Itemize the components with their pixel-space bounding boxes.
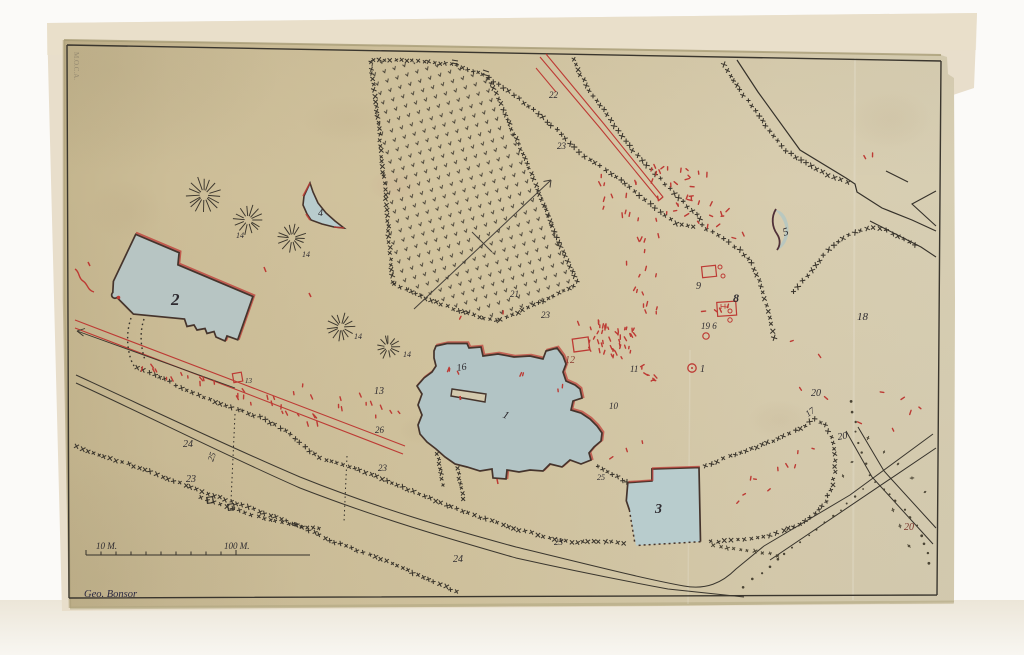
- svg-text:14: 14: [236, 231, 244, 240]
- svg-text:100 M.: 100 M.: [224, 541, 250, 551]
- svg-text:3: 3: [654, 502, 662, 517]
- svg-text:11: 11: [630, 364, 638, 374]
- svg-text:23: 23: [378, 463, 388, 473]
- svg-text:14: 14: [354, 332, 362, 341]
- svg-text:23: 23: [554, 537, 564, 547]
- svg-text:12: 12: [565, 355, 575, 366]
- svg-text:14: 14: [403, 350, 411, 359]
- svg-text:8: 8: [733, 291, 739, 305]
- svg-text:20: 20: [811, 388, 821, 399]
- svg-text:18: 18: [857, 311, 869, 323]
- svg-text:13: 13: [245, 377, 253, 385]
- svg-text:M.O.C.A.: M.O.C.A.: [72, 52, 80, 80]
- svg-text:23: 23: [186, 474, 196, 485]
- svg-text:14: 14: [302, 250, 310, 259]
- svg-text:24: 24: [183, 439, 193, 450]
- svg-text:22: 22: [549, 90, 559, 100]
- svg-text:23: 23: [557, 141, 567, 151]
- svg-text:Geo. Bonsor: Geo. Bonsor: [84, 589, 138, 600]
- svg-text:25: 25: [597, 473, 605, 482]
- svg-text:13: 13: [374, 386, 384, 397]
- svg-text:4: 4: [318, 208, 323, 219]
- svg-text:21: 21: [510, 289, 519, 299]
- svg-text:20: 20: [904, 522, 914, 533]
- svg-text:10: 10: [609, 401, 619, 411]
- svg-text:23: 23: [541, 310, 551, 320]
- svg-text:20: 20: [837, 430, 849, 443]
- svg-text:26: 26: [375, 425, 385, 435]
- svg-text:9: 9: [696, 281, 701, 292]
- svg-text:1: 1: [700, 364, 705, 375]
- svg-text:19 6: 19 6: [701, 321, 717, 331]
- svg-text:24: 24: [453, 554, 463, 565]
- svg-text:10 M.: 10 M.: [96, 541, 117, 551]
- svg-text:2: 2: [170, 290, 180, 309]
